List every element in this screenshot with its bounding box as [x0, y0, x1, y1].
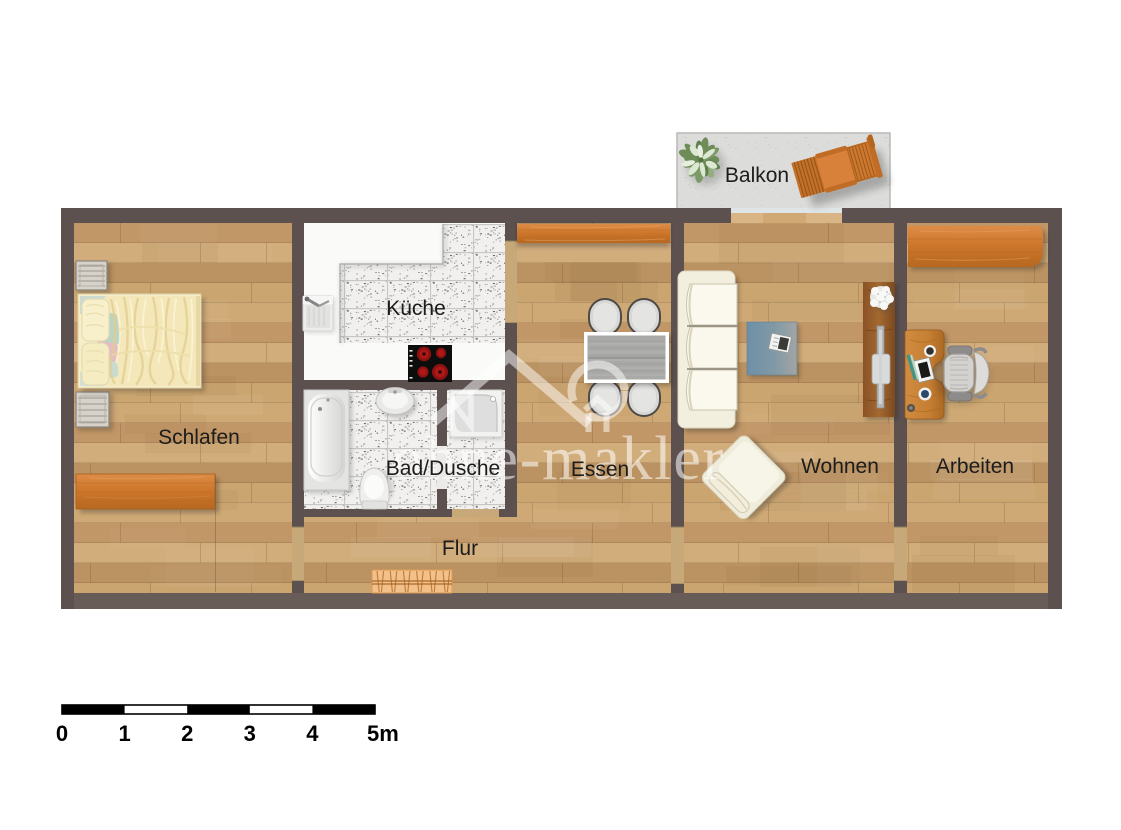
- svg-text:Essen: Essen: [571, 458, 629, 481]
- svg-text:Balkon: Balkon: [725, 164, 789, 187]
- svg-text:5m: 5m: [367, 721, 399, 746]
- svg-text:3: 3: [244, 721, 256, 746]
- svg-text:Küche: Küche: [386, 297, 446, 320]
- svg-text:Arbeiten: Arbeiten: [936, 455, 1014, 478]
- svg-text:Bad/Dusche: Bad/Dusche: [386, 457, 500, 480]
- svg-text:2: 2: [181, 721, 193, 746]
- svg-text:4: 4: [306, 721, 319, 746]
- svg-text:0: 0: [56, 721, 68, 746]
- svg-text:Wohnen: Wohnen: [801, 455, 879, 478]
- svg-text:Flur: Flur: [442, 537, 478, 560]
- svg-text:Schlafen: Schlafen: [158, 426, 240, 449]
- svg-text:1: 1: [118, 721, 130, 746]
